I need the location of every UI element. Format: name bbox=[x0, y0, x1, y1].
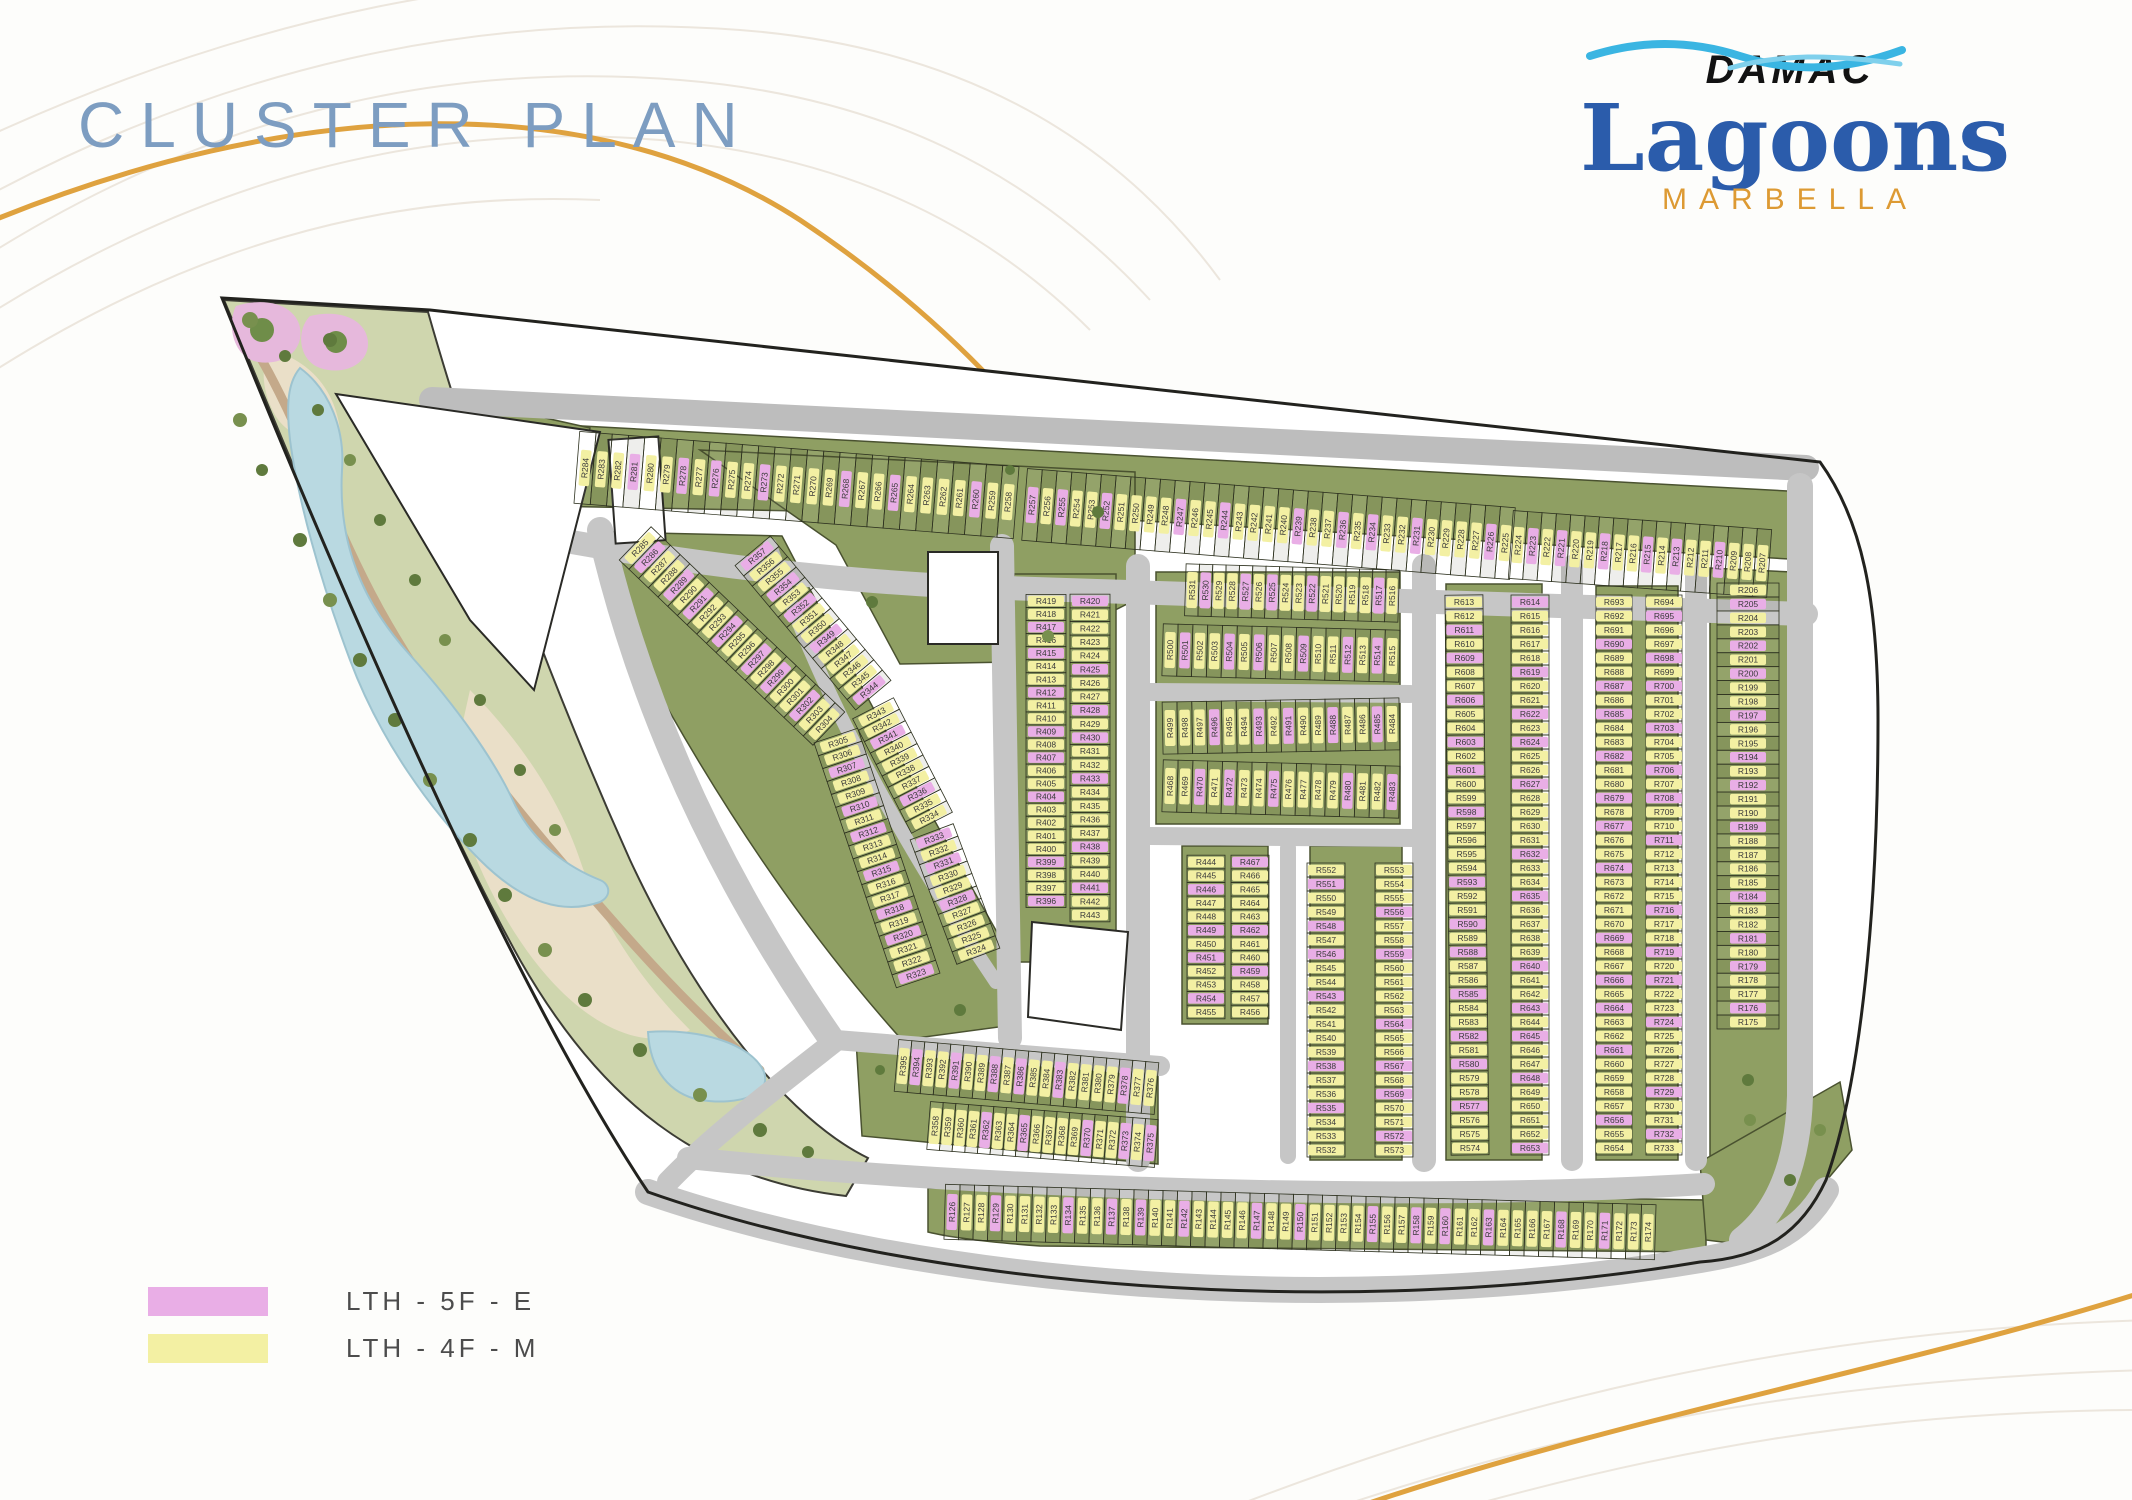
unit-label: R576 bbox=[1460, 1115, 1481, 1125]
unit-label: R534 bbox=[1316, 1117, 1337, 1127]
unit-label: R248 bbox=[1159, 505, 1171, 526]
unit-label: R706 bbox=[1654, 765, 1675, 775]
unit-label: R614 bbox=[1520, 597, 1541, 607]
unit-label: R368 bbox=[1056, 1125, 1068, 1146]
unit-label: R269 bbox=[823, 477, 835, 498]
unit-label: R569 bbox=[1384, 1089, 1405, 1099]
unit-label: R266 bbox=[872, 481, 884, 502]
unit-label: R563 bbox=[1384, 1005, 1405, 1015]
unit-label: R261 bbox=[953, 487, 965, 508]
unit-label: R727 bbox=[1654, 1059, 1675, 1069]
unit-label: R594 bbox=[1457, 863, 1478, 873]
unit-label: R710 bbox=[1654, 821, 1675, 831]
legend: LTH - 5F - E LTH - 4F - M bbox=[148, 1286, 539, 1380]
unit-label: R628 bbox=[1520, 793, 1541, 803]
unit-label: R649 bbox=[1520, 1087, 1541, 1097]
unit-label: R175 bbox=[1738, 1017, 1759, 1027]
tree-icon bbox=[353, 653, 367, 667]
legend-row: LTH - 5F - E bbox=[148, 1286, 539, 1317]
unit-label: R409 bbox=[1036, 726, 1057, 736]
unit-label: R166 bbox=[1527, 1218, 1538, 1239]
unit-label: R633 bbox=[1520, 863, 1541, 873]
unit-label: R514 bbox=[1372, 645, 1383, 666]
unit-label: R479 bbox=[1328, 780, 1339, 801]
tree-icon bbox=[374, 514, 386, 526]
unit-label: R711 bbox=[1654, 835, 1674, 845]
unit-label: R174 bbox=[1643, 1221, 1654, 1242]
unit-label: R225 bbox=[1499, 532, 1511, 553]
unit-label: R132 bbox=[1034, 1204, 1045, 1225]
unit-label: R171 bbox=[1599, 1220, 1610, 1241]
unit-label: R364 bbox=[1005, 1121, 1017, 1142]
unit-label: R156 bbox=[1382, 1214, 1393, 1235]
unit-label: R152 bbox=[1324, 1212, 1335, 1233]
unit-label: R413 bbox=[1036, 674, 1057, 684]
unit-label: R624 bbox=[1520, 737, 1541, 747]
unit-label: R157 bbox=[1396, 1214, 1407, 1235]
unit-label: R492 bbox=[1268, 716, 1278, 737]
unit-label: R613 bbox=[1454, 597, 1475, 607]
tree-icon bbox=[1042, 630, 1054, 642]
unit-label: R438 bbox=[1080, 842, 1101, 852]
unit-label: R497 bbox=[1194, 717, 1204, 738]
unit-label: R724 bbox=[1654, 1017, 1675, 1027]
unit-label: R694 bbox=[1654, 597, 1675, 607]
unit-label: R431 bbox=[1080, 746, 1101, 756]
unit-label: R682 bbox=[1604, 751, 1625, 761]
unit-label: R561 bbox=[1384, 977, 1405, 987]
unit-label: R643 bbox=[1520, 1003, 1541, 1013]
legend-swatch-lth-4f-m bbox=[148, 1334, 268, 1363]
unit-label: R167 bbox=[1541, 1219, 1552, 1240]
unit-label: R412 bbox=[1036, 687, 1057, 697]
orange-wave-bottom bbox=[1320, 1290, 2132, 1500]
unit-label: R381 bbox=[1079, 1071, 1091, 1092]
unit-label: R600 bbox=[1456, 779, 1477, 789]
unit-label: R425 bbox=[1080, 664, 1101, 674]
unit-label: R685 bbox=[1604, 709, 1625, 719]
unit-label: R644 bbox=[1520, 1017, 1541, 1027]
unit-label: R206 bbox=[1738, 585, 1759, 595]
unit-label: R579 bbox=[1459, 1073, 1480, 1083]
unit-label: R127 bbox=[961, 1202, 972, 1223]
unit-label: R592 bbox=[1457, 891, 1478, 901]
unit-label: R571 bbox=[1384, 1117, 1405, 1127]
unit-label: R273 bbox=[758, 472, 770, 493]
unit-label: R259 bbox=[986, 490, 998, 511]
tree-icon bbox=[312, 404, 324, 416]
unit-label: R553 bbox=[1384, 865, 1405, 875]
unit-label: R207 bbox=[1756, 552, 1767, 573]
unit-label: R491 bbox=[1283, 715, 1293, 736]
unit-label: R531 bbox=[1187, 579, 1198, 600]
unit-label: R517 bbox=[1373, 585, 1384, 606]
unit-label: R647 bbox=[1520, 1059, 1541, 1069]
unit-label: R462 bbox=[1240, 925, 1261, 935]
unit-label: R158 bbox=[1411, 1215, 1422, 1236]
unit-label: R249 bbox=[1144, 504, 1156, 525]
unit-label: R129 bbox=[990, 1203, 1001, 1224]
unit-label: R583 bbox=[1458, 1017, 1479, 1027]
unit-label: R713 bbox=[1654, 863, 1675, 873]
unit-label: R602 bbox=[1456, 751, 1477, 761]
unit-label: R235 bbox=[1351, 520, 1363, 541]
unit-row-col-d-right: R553R554R555R556R557R558R559R560R561R562… bbox=[1375, 863, 1413, 1157]
unit-label: R466 bbox=[1240, 871, 1261, 881]
unit-label: R658 bbox=[1604, 1087, 1625, 1097]
unit-label: R482 bbox=[1372, 781, 1383, 802]
unit-label: R700 bbox=[1654, 681, 1675, 691]
unit-label: R376 bbox=[1144, 1077, 1156, 1098]
unit-label: R545 bbox=[1316, 963, 1337, 973]
unit-label: R149 bbox=[1280, 1211, 1291, 1232]
unit-label: R467 bbox=[1240, 857, 1261, 867]
unit-label: R242 bbox=[1248, 512, 1260, 533]
unit-label: R193 bbox=[1738, 766, 1759, 776]
unit-label: R506 bbox=[1254, 642, 1265, 663]
tree-icon bbox=[463, 833, 477, 847]
unit-label: R251 bbox=[1115, 501, 1127, 522]
unit-label: R187 bbox=[1738, 850, 1759, 860]
unit-label: R241 bbox=[1263, 513, 1275, 534]
unit-label: R456 bbox=[1240, 1007, 1261, 1017]
unit-label: R468 bbox=[1165, 775, 1176, 796]
unit-label: R371 bbox=[1094, 1128, 1106, 1149]
unit-label: R395 bbox=[897, 1055, 909, 1076]
unit-label: R433 bbox=[1080, 773, 1101, 783]
unit-label: R281 bbox=[628, 461, 640, 482]
unit-label: R597 bbox=[1456, 821, 1477, 831]
unit-label: R538 bbox=[1316, 1061, 1337, 1071]
unit-label: R541 bbox=[1316, 1019, 1337, 1029]
unit-label: R671 bbox=[1604, 905, 1625, 915]
tree-icon bbox=[578, 993, 592, 1007]
unit-label: R372 bbox=[1106, 1129, 1118, 1150]
unit-label: R190 bbox=[1738, 808, 1759, 818]
unit-label: R415 bbox=[1036, 648, 1057, 658]
unit-label: R424 bbox=[1080, 651, 1101, 661]
unit-label: R278 bbox=[677, 465, 689, 486]
unit-label: R668 bbox=[1604, 947, 1625, 957]
unit-label: R499 bbox=[1165, 717, 1175, 738]
unit-label: R215 bbox=[1641, 544, 1652, 565]
unit-label: R555 bbox=[1384, 893, 1405, 903]
unit-label: R634 bbox=[1520, 877, 1541, 887]
unit-label: R623 bbox=[1520, 723, 1541, 733]
unit-label: R222 bbox=[1541, 536, 1552, 557]
unit-label: R652 bbox=[1520, 1129, 1541, 1139]
unit-label: R640 bbox=[1520, 961, 1541, 971]
unit-label: R659 bbox=[1604, 1073, 1625, 1083]
unit-label: R542 bbox=[1316, 1005, 1337, 1015]
unit-label: R559 bbox=[1384, 949, 1405, 959]
unit-label: R140 bbox=[1150, 1207, 1161, 1228]
unit-label: R632 bbox=[1520, 849, 1541, 859]
unit-label: R150 bbox=[1295, 1211, 1306, 1232]
unit-label: R715 bbox=[1654, 891, 1675, 901]
unit-label: R615 bbox=[1520, 611, 1541, 621]
unit-label: R274 bbox=[742, 470, 754, 491]
unit-label: R635 bbox=[1520, 891, 1541, 901]
unit-label: R239 bbox=[1292, 516, 1304, 537]
unit-label: R511 bbox=[1328, 644, 1339, 664]
unit-label: R210 bbox=[1713, 549, 1724, 570]
unit-label: R379 bbox=[1105, 1074, 1117, 1095]
unit-label: R221 bbox=[1555, 537, 1566, 558]
unit-label: R667 bbox=[1604, 961, 1625, 971]
unit-label: R547 bbox=[1316, 935, 1337, 945]
unit-label: R144 bbox=[1208, 1209, 1219, 1230]
unit-label: R722 bbox=[1654, 989, 1675, 999]
unit-label: R544 bbox=[1316, 977, 1337, 987]
tree-icon bbox=[1092, 506, 1104, 518]
unit-label: R265 bbox=[888, 482, 900, 503]
tree-icon bbox=[1814, 1124, 1826, 1136]
unit-label: R684 bbox=[1604, 723, 1625, 733]
unit-label: R574 bbox=[1460, 1143, 1481, 1153]
unit-label: R641 bbox=[1520, 975, 1541, 985]
brand-logo: DAMAC Lagoons MARBELLA bbox=[1580, 48, 2000, 217]
unit-label: R405 bbox=[1036, 779, 1057, 789]
unit-label: R418 bbox=[1036, 609, 1057, 619]
unit-label: R176 bbox=[1738, 1003, 1759, 1013]
unit-label: R503 bbox=[1209, 641, 1220, 662]
unit-label: R489 bbox=[1313, 715, 1323, 736]
unit-label: R533 bbox=[1316, 1131, 1337, 1141]
unit-label: R194 bbox=[1738, 752, 1759, 762]
unit-label: R516 bbox=[1387, 585, 1398, 606]
unit-label: R471 bbox=[1209, 777, 1220, 798]
unit-label: R701 bbox=[1654, 695, 1675, 705]
unit-row-col-c-right: R467R466R465R464R463R462R461R460R459R458… bbox=[1231, 855, 1269, 1019]
unit-label: R200 bbox=[1738, 669, 1759, 679]
unit-label: R443 bbox=[1080, 910, 1101, 920]
unit-label: R392 bbox=[936, 1059, 948, 1080]
cluster-plan-map: R284R283R282R281R280R279R278R277R276R275… bbox=[0, 0, 2132, 1500]
unit-label: R470 bbox=[1194, 776, 1205, 797]
unit-label: R168 bbox=[1556, 1219, 1567, 1240]
unit-label: R244 bbox=[1218, 510, 1230, 531]
unit-label: R566 bbox=[1384, 1047, 1405, 1057]
unit-label: R570 bbox=[1384, 1103, 1405, 1113]
unit-label: R399 bbox=[1036, 857, 1057, 867]
unit-label: R508 bbox=[1283, 643, 1294, 664]
unit-row-col-e-left: R613R612R611R610R609R608R607R606R605R604… bbox=[1445, 595, 1489, 1155]
unit-label: R209 bbox=[1728, 550, 1739, 571]
unit-label: R429 bbox=[1080, 719, 1101, 729]
unit-label: R691 bbox=[1604, 625, 1625, 635]
unit-label: R277 bbox=[693, 466, 705, 487]
unit-label: R159 bbox=[1425, 1215, 1436, 1236]
unit-label: R670 bbox=[1604, 919, 1625, 929]
tree-icon bbox=[242, 312, 258, 328]
unit-label: R609 bbox=[1454, 653, 1475, 663]
unit-label: R488 bbox=[1328, 715, 1338, 736]
unit-label: R496 bbox=[1209, 717, 1219, 738]
unit-label: R678 bbox=[1604, 807, 1625, 817]
unit-label: R580 bbox=[1459, 1059, 1480, 1069]
unit-label: R455 bbox=[1196, 1007, 1217, 1017]
unit-label: R141 bbox=[1164, 1208, 1175, 1229]
road-arc-east bbox=[1002, 546, 1010, 1038]
unit-label: R407 bbox=[1036, 753, 1057, 763]
unit-label: R610 bbox=[1454, 639, 1475, 649]
unit-label: R689 bbox=[1604, 653, 1625, 663]
unit-label: R137 bbox=[1106, 1206, 1117, 1227]
unit-label: R554 bbox=[1384, 879, 1405, 889]
unit-label: R143 bbox=[1193, 1209, 1204, 1230]
unit-label: R721 bbox=[1654, 975, 1675, 985]
unit-label: R562 bbox=[1384, 991, 1405, 1001]
unit-label: R733 bbox=[1654, 1143, 1675, 1153]
unit-label: R585 bbox=[1458, 989, 1479, 999]
unit-label: R588 bbox=[1458, 947, 1479, 957]
unit-label: R690 bbox=[1604, 639, 1625, 649]
unit-label: R428 bbox=[1080, 705, 1101, 715]
unit-label: R617 bbox=[1520, 639, 1541, 649]
unit-label: R605 bbox=[1455, 709, 1476, 719]
unit-label: R469 bbox=[1180, 776, 1191, 797]
unit-label: R165 bbox=[1512, 1218, 1523, 1239]
unit-label: R704 bbox=[1654, 737, 1675, 747]
unit-label: R653 bbox=[1520, 1143, 1541, 1153]
tree-icon bbox=[633, 1043, 647, 1057]
unit-label: R177 bbox=[1738, 989, 1759, 999]
unit-label: R164 bbox=[1498, 1217, 1509, 1238]
unit-label: R730 bbox=[1654, 1101, 1675, 1111]
unit-label: R427 bbox=[1080, 692, 1101, 702]
unit-label: R591 bbox=[1457, 905, 1478, 915]
tree-icon bbox=[1744, 1114, 1756, 1126]
unit-label: R270 bbox=[807, 476, 819, 497]
unit-label: R183 bbox=[1738, 906, 1759, 916]
unit-label: R271 bbox=[791, 474, 803, 495]
unit-label: R404 bbox=[1036, 792, 1057, 802]
unit-label: R145 bbox=[1222, 1209, 1233, 1230]
unit-label: R262 bbox=[937, 486, 949, 507]
tree-icon bbox=[474, 694, 486, 706]
unit-label: R598 bbox=[1456, 807, 1477, 817]
unit-label: R383 bbox=[1053, 1069, 1065, 1090]
unit-label: R676 bbox=[1604, 835, 1625, 845]
unit-label: R260 bbox=[970, 489, 982, 510]
unit-label: R198 bbox=[1738, 696, 1759, 706]
unit-row-right-edge-column: R206R205R204R203R202R201R200R199R198R197… bbox=[1717, 583, 1779, 1029]
unit-label: R257 bbox=[1026, 494, 1038, 515]
unit-label: R370 bbox=[1081, 1127, 1093, 1148]
unit-label: R631 bbox=[1520, 835, 1541, 845]
unit-label: R480 bbox=[1342, 780, 1353, 801]
unit-label: R181 bbox=[1738, 933, 1759, 943]
unit-label: R459 bbox=[1240, 966, 1261, 976]
unit-label: R535 bbox=[1316, 1103, 1337, 1113]
unit-label: R378 bbox=[1118, 1075, 1130, 1096]
unit-label: R162 bbox=[1469, 1216, 1480, 1237]
unit-label: R247 bbox=[1174, 506, 1186, 527]
unit-label: R403 bbox=[1036, 805, 1057, 815]
unit-label: R135 bbox=[1077, 1205, 1088, 1226]
unit-label: R500 bbox=[1165, 639, 1176, 660]
unit-label: R133 bbox=[1048, 1204, 1059, 1225]
unit-label: R472 bbox=[1224, 777, 1235, 798]
tree-icon bbox=[1742, 1074, 1754, 1086]
unit-label: R683 bbox=[1604, 737, 1625, 747]
unit-label: R709 bbox=[1654, 807, 1675, 817]
unit-label: R515 bbox=[1387, 645, 1398, 666]
unit-label: R217 bbox=[1613, 542, 1624, 563]
unit-label: R568 bbox=[1384, 1075, 1405, 1085]
unit-label: R626 bbox=[1520, 765, 1541, 775]
unit-label: R191 bbox=[1738, 794, 1759, 804]
unit-label: R572 bbox=[1384, 1131, 1405, 1141]
unit-label: R374 bbox=[1132, 1131, 1144, 1152]
unit-label: R361 bbox=[967, 1118, 979, 1139]
tree-icon bbox=[514, 764, 526, 776]
tree-icon bbox=[439, 634, 451, 646]
unit-label: R256 bbox=[1041, 495, 1053, 516]
unit-label: R173 bbox=[1628, 1221, 1639, 1242]
unit-label: R586 bbox=[1458, 975, 1479, 985]
unit-label: R214 bbox=[1656, 545, 1667, 566]
unit-label: R681 bbox=[1604, 765, 1625, 775]
unit-label: R440 bbox=[1080, 869, 1101, 879]
unit-label: R238 bbox=[1307, 517, 1319, 538]
wave-icon bbox=[1580, 34, 1910, 76]
unit-label: R501 bbox=[1180, 640, 1191, 661]
tree-icon bbox=[954, 1004, 966, 1016]
unit-label: R147 bbox=[1251, 1210, 1262, 1231]
unit-label: R655 bbox=[1604, 1129, 1625, 1139]
unit-label: R442 bbox=[1080, 896, 1101, 906]
unit-label: R664 bbox=[1604, 1003, 1625, 1013]
unit-label: R441 bbox=[1080, 883, 1101, 893]
unit-label: R237 bbox=[1322, 518, 1334, 539]
unit-label: R665 bbox=[1604, 989, 1625, 999]
unit-row-col-d-left: R552R551R550R549R548R547R546R545R544R543… bbox=[1307, 863, 1345, 1157]
unit-label: R444 bbox=[1196, 857, 1217, 867]
unit-label: R549 bbox=[1316, 907, 1337, 917]
unit-label: R240 bbox=[1277, 514, 1289, 535]
unit-label: R524 bbox=[1280, 582, 1291, 603]
unit-label: R258 bbox=[1002, 491, 1014, 512]
unit-label: R229 bbox=[1440, 527, 1452, 548]
unit-row-col-c-left: R444R445R446R447R448R449R450R451R452R453… bbox=[1187, 855, 1225, 1019]
legend-swatch-lth-5f-e bbox=[148, 1287, 268, 1316]
unit-row-col-e-right: R614R615R616R617R618R619R620R621R622R623… bbox=[1511, 595, 1549, 1155]
unit-label: R423 bbox=[1080, 637, 1101, 647]
unit-label: R367 bbox=[1043, 1124, 1055, 1145]
unit-label: R675 bbox=[1604, 849, 1625, 859]
unit-label: R705 bbox=[1654, 751, 1675, 761]
unit-label: R461 bbox=[1240, 939, 1261, 949]
unit-label: R363 bbox=[992, 1120, 1004, 1141]
unit-label: R254 bbox=[1071, 498, 1083, 519]
unit-label: R388 bbox=[988, 1063, 1000, 1084]
tree-icon bbox=[344, 454, 356, 466]
unit-label: R584 bbox=[1458, 1003, 1479, 1013]
unit-label: R172 bbox=[1614, 1221, 1625, 1242]
unit-label: R463 bbox=[1240, 912, 1261, 922]
unit-label: R449 bbox=[1196, 925, 1217, 935]
unit-label: R139 bbox=[1135, 1207, 1146, 1228]
unit-label: R636 bbox=[1520, 905, 1541, 915]
lagoons-wordmark: Lagoons bbox=[1580, 95, 2000, 181]
unit-label: R606 bbox=[1455, 695, 1476, 705]
unit-label: R630 bbox=[1520, 821, 1541, 831]
unit-label: R136 bbox=[1092, 1206, 1103, 1227]
unit-label: R718 bbox=[1654, 933, 1675, 943]
unit-label: R692 bbox=[1604, 611, 1625, 621]
